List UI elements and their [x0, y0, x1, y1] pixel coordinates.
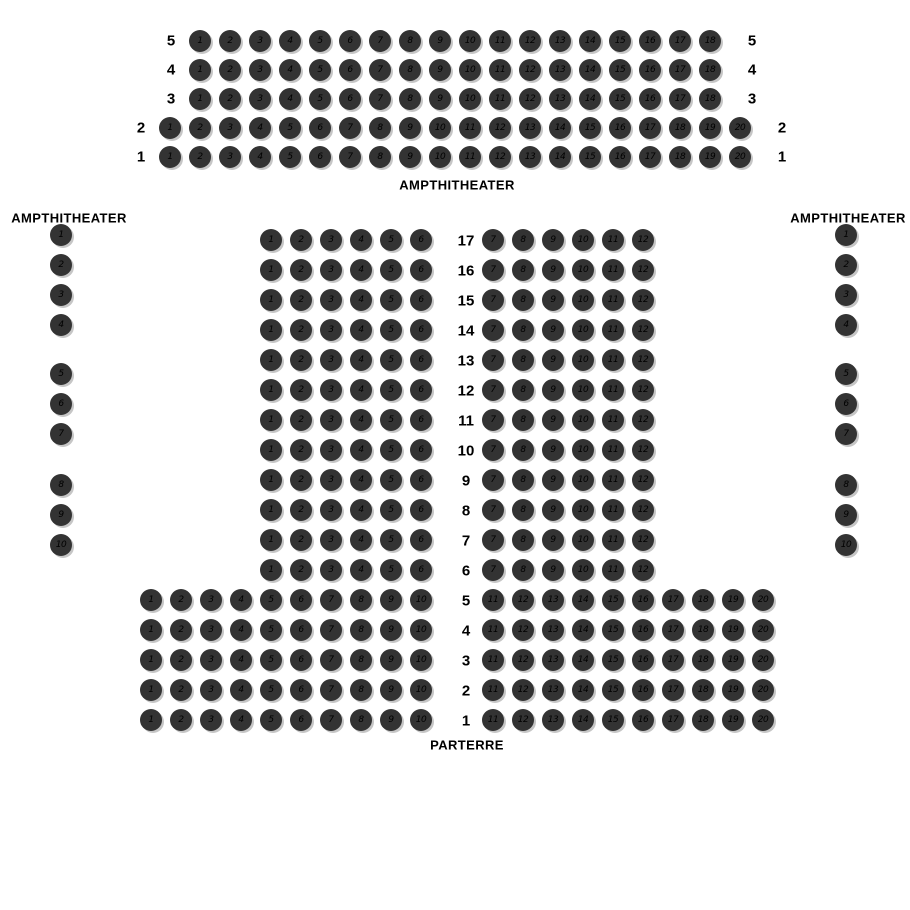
- seat[interactable]: 6: [339, 88, 361, 110]
- seat[interactable]: 18: [692, 589, 714, 611]
- seat[interactable]: 8: [512, 379, 534, 401]
- seat[interactable]: 8: [512, 499, 534, 521]
- seat[interactable]: 1: [835, 224, 857, 246]
- seat[interactable]: 2: [290, 379, 312, 401]
- seat[interactable]: 20: [752, 709, 774, 731]
- seat[interactable]: 20: [752, 679, 774, 701]
- seat[interactable]: 10: [572, 349, 594, 371]
- seat[interactable]: 14: [572, 649, 594, 671]
- seat[interactable]: 8: [399, 88, 421, 110]
- seat[interactable]: 5: [380, 529, 402, 551]
- seat[interactable]: 8: [369, 117, 391, 139]
- seat[interactable]: 9: [399, 146, 421, 168]
- seat[interactable]: 9: [542, 289, 564, 311]
- seat[interactable]: 7: [482, 529, 504, 551]
- seat[interactable]: 11: [482, 619, 504, 641]
- seat[interactable]: 3: [50, 284, 72, 306]
- seat[interactable]: 10: [572, 289, 594, 311]
- seat[interactable]: 2: [290, 439, 312, 461]
- seat[interactable]: 18: [699, 88, 721, 110]
- seat[interactable]: 4: [350, 529, 372, 551]
- seat[interactable]: 4: [249, 146, 271, 168]
- seat[interactable]: 9: [542, 259, 564, 281]
- seat[interactable]: 16: [609, 117, 631, 139]
- seat[interactable]: 15: [609, 88, 631, 110]
- seat[interactable]: 2: [290, 259, 312, 281]
- seat[interactable]: 7: [320, 649, 342, 671]
- seat[interactable]: 3: [320, 259, 342, 281]
- seat[interactable]: 3: [200, 679, 222, 701]
- seat[interactable]: 7: [482, 379, 504, 401]
- seat[interactable]: 17: [662, 619, 684, 641]
- seat[interactable]: 3: [200, 619, 222, 641]
- seat[interactable]: 6: [290, 619, 312, 641]
- seat[interactable]: 20: [752, 649, 774, 671]
- seat[interactable]: 5: [380, 559, 402, 581]
- seat[interactable]: 15: [602, 679, 624, 701]
- seat[interactable]: 4: [50, 314, 72, 336]
- seat[interactable]: 4: [279, 30, 301, 52]
- seat[interactable]: 20: [729, 117, 751, 139]
- seat[interactable]: 15: [579, 117, 601, 139]
- seat[interactable]: 12: [632, 229, 654, 251]
- seat[interactable]: 6: [410, 559, 432, 581]
- seat[interactable]: 4: [350, 289, 372, 311]
- seat[interactable]: 6: [410, 289, 432, 311]
- seat[interactable]: 1: [140, 679, 162, 701]
- seat[interactable]: 9: [380, 649, 402, 671]
- seat[interactable]: 1: [50, 224, 72, 246]
- seat[interactable]: 2: [219, 30, 241, 52]
- seat[interactable]: 14: [579, 88, 601, 110]
- seat[interactable]: 9: [50, 504, 72, 526]
- seat[interactable]: 9: [380, 589, 402, 611]
- seat[interactable]: 10: [410, 679, 432, 701]
- seat[interactable]: 14: [572, 679, 594, 701]
- seat[interactable]: 11: [482, 649, 504, 671]
- seat[interactable]: 6: [290, 589, 312, 611]
- seat[interactable]: 4: [230, 589, 252, 611]
- seat[interactable]: 12: [489, 117, 511, 139]
- seat[interactable]: 9: [429, 30, 451, 52]
- seat[interactable]: 8: [512, 559, 534, 581]
- seat[interactable]: 11: [602, 529, 624, 551]
- seat[interactable]: 9: [542, 439, 564, 461]
- seat[interactable]: 8: [512, 469, 534, 491]
- seat[interactable]: 11: [602, 229, 624, 251]
- seat[interactable]: 6: [339, 59, 361, 81]
- seat[interactable]: 10: [572, 529, 594, 551]
- seat[interactable]: 18: [699, 59, 721, 81]
- seat[interactable]: 1: [260, 499, 282, 521]
- seat[interactable]: 7: [835, 423, 857, 445]
- seat[interactable]: 7: [482, 439, 504, 461]
- seat[interactable]: 3: [320, 229, 342, 251]
- seat[interactable]: 9: [542, 559, 564, 581]
- seat[interactable]: 6: [410, 469, 432, 491]
- seat[interactable]: 12: [512, 679, 534, 701]
- seat[interactable]: 1: [140, 619, 162, 641]
- seat[interactable]: 17: [662, 649, 684, 671]
- seat[interactable]: 8: [512, 529, 534, 551]
- seat[interactable]: 16: [632, 589, 654, 611]
- seat[interactable]: 1: [140, 589, 162, 611]
- seat[interactable]: 5: [380, 469, 402, 491]
- seat[interactable]: 11: [489, 88, 511, 110]
- seat[interactable]: 5: [279, 117, 301, 139]
- seat[interactable]: 7: [482, 259, 504, 281]
- seat[interactable]: 12: [632, 259, 654, 281]
- seat[interactable]: 3: [320, 499, 342, 521]
- seat[interactable]: 2: [50, 254, 72, 276]
- seat[interactable]: 8: [50, 474, 72, 496]
- seat[interactable]: 6: [309, 117, 331, 139]
- seat[interactable]: 4: [350, 439, 372, 461]
- seat[interactable]: 2: [170, 619, 192, 641]
- seat[interactable]: 16: [639, 30, 661, 52]
- seat[interactable]: 5: [380, 409, 402, 431]
- seat[interactable]: 1: [260, 559, 282, 581]
- seat[interactable]: 4: [350, 409, 372, 431]
- seat[interactable]: 7: [482, 349, 504, 371]
- seat[interactable]: 13: [542, 619, 564, 641]
- seat[interactable]: 4: [835, 314, 857, 336]
- seat[interactable]: 10: [835, 534, 857, 556]
- seat[interactable]: 9: [429, 59, 451, 81]
- seat[interactable]: 1: [260, 379, 282, 401]
- seat[interactable]: 7: [482, 319, 504, 341]
- seat[interactable]: 10: [572, 409, 594, 431]
- seat[interactable]: 12: [512, 709, 534, 731]
- seat[interactable]: 5: [260, 589, 282, 611]
- seat[interactable]: 13: [549, 59, 571, 81]
- seat[interactable]: 3: [249, 30, 271, 52]
- seat[interactable]: 17: [639, 146, 661, 168]
- seat[interactable]: 3: [320, 559, 342, 581]
- seat[interactable]: 8: [350, 649, 372, 671]
- seat[interactable]: 2: [290, 319, 312, 341]
- seat[interactable]: 16: [639, 59, 661, 81]
- seat[interactable]: 10: [410, 619, 432, 641]
- seat[interactable]: 10: [459, 30, 481, 52]
- seat[interactable]: 20: [729, 146, 751, 168]
- seat[interactable]: 12: [632, 379, 654, 401]
- seat[interactable]: 3: [219, 146, 241, 168]
- seat[interactable]: 1: [159, 117, 181, 139]
- seat[interactable]: 7: [482, 499, 504, 521]
- seat[interactable]: 9: [835, 504, 857, 526]
- seat[interactable]: 12: [512, 619, 534, 641]
- seat[interactable]: 12: [632, 409, 654, 431]
- seat[interactable]: 2: [290, 499, 312, 521]
- seat[interactable]: 7: [339, 117, 361, 139]
- seat[interactable]: 17: [662, 679, 684, 701]
- seat[interactable]: 14: [579, 59, 601, 81]
- seat[interactable]: 11: [602, 439, 624, 461]
- seat[interactable]: 10: [572, 259, 594, 281]
- seat[interactable]: 10: [410, 589, 432, 611]
- seat[interactable]: 3: [835, 284, 857, 306]
- seat[interactable]: 4: [230, 649, 252, 671]
- seat[interactable]: 5: [279, 146, 301, 168]
- seat[interactable]: 9: [542, 229, 564, 251]
- seat[interactable]: 8: [512, 409, 534, 431]
- seat[interactable]: 12: [632, 349, 654, 371]
- seat[interactable]: 6: [835, 393, 857, 415]
- seat[interactable]: 6: [410, 499, 432, 521]
- seat[interactable]: 12: [632, 559, 654, 581]
- seat[interactable]: 9: [380, 619, 402, 641]
- seat[interactable]: 12: [489, 146, 511, 168]
- seat[interactable]: 11: [602, 559, 624, 581]
- seat[interactable]: 8: [512, 259, 534, 281]
- seat[interactable]: 6: [290, 679, 312, 701]
- seat[interactable]: 10: [572, 499, 594, 521]
- seat[interactable]: 6: [339, 30, 361, 52]
- seat[interactable]: 5: [380, 439, 402, 461]
- seat[interactable]: 7: [320, 619, 342, 641]
- seat[interactable]: 20: [752, 589, 774, 611]
- seat[interactable]: 6: [290, 649, 312, 671]
- seat[interactable]: 3: [200, 649, 222, 671]
- seat[interactable]: 11: [602, 289, 624, 311]
- seat[interactable]: 18: [692, 619, 714, 641]
- seat[interactable]: 4: [350, 319, 372, 341]
- seat[interactable]: 14: [572, 619, 594, 641]
- seat[interactable]: 18: [699, 30, 721, 52]
- seat[interactable]: 3: [320, 289, 342, 311]
- seat[interactable]: 17: [639, 117, 661, 139]
- seat[interactable]: 19: [722, 589, 744, 611]
- seat[interactable]: 9: [542, 469, 564, 491]
- seat[interactable]: 18: [692, 649, 714, 671]
- seat[interactable]: 11: [602, 499, 624, 521]
- seat[interactable]: 6: [309, 146, 331, 168]
- seat[interactable]: 1: [189, 30, 211, 52]
- seat[interactable]: 19: [722, 679, 744, 701]
- seat[interactable]: 7: [482, 409, 504, 431]
- seat[interactable]: 16: [632, 679, 654, 701]
- seat[interactable]: 18: [669, 146, 691, 168]
- seat[interactable]: 1: [260, 409, 282, 431]
- seat[interactable]: 9: [429, 88, 451, 110]
- seat[interactable]: 5: [380, 379, 402, 401]
- seat[interactable]: 8: [512, 229, 534, 251]
- seat[interactable]: 10: [572, 559, 594, 581]
- seat[interactable]: 10: [572, 229, 594, 251]
- seat[interactable]: 5: [309, 88, 331, 110]
- seat[interactable]: 11: [459, 117, 481, 139]
- seat[interactable]: 13: [542, 649, 564, 671]
- seat[interactable]: 18: [669, 117, 691, 139]
- seat[interactable]: 2: [290, 469, 312, 491]
- seat[interactable]: 16: [639, 88, 661, 110]
- seat[interactable]: 6: [290, 709, 312, 731]
- seat[interactable]: 14: [572, 589, 594, 611]
- seat[interactable]: 5: [380, 499, 402, 521]
- seat[interactable]: 2: [290, 559, 312, 581]
- seat[interactable]: 3: [249, 88, 271, 110]
- seat[interactable]: 4: [350, 349, 372, 371]
- seat[interactable]: 18: [692, 709, 714, 731]
- seat[interactable]: 11: [489, 59, 511, 81]
- seat[interactable]: 5: [380, 349, 402, 371]
- seat[interactable]: 17: [662, 589, 684, 611]
- seat[interactable]: 7: [320, 679, 342, 701]
- seat[interactable]: 9: [542, 379, 564, 401]
- seat[interactable]: 6: [410, 379, 432, 401]
- seat[interactable]: 9: [380, 709, 402, 731]
- seat[interactable]: 11: [602, 259, 624, 281]
- seat[interactable]: 3: [219, 117, 241, 139]
- seat[interactable]: 4: [230, 679, 252, 701]
- seat[interactable]: 15: [602, 589, 624, 611]
- seat[interactable]: 17: [662, 709, 684, 731]
- seat[interactable]: 5: [380, 259, 402, 281]
- seat[interactable]: 3: [320, 439, 342, 461]
- seat[interactable]: 16: [632, 649, 654, 671]
- seat[interactable]: 19: [722, 709, 744, 731]
- seat[interactable]: 5: [260, 619, 282, 641]
- seat[interactable]: 5: [380, 289, 402, 311]
- seat[interactable]: 11: [602, 319, 624, 341]
- seat[interactable]: 5: [309, 59, 331, 81]
- seat[interactable]: 10: [429, 146, 451, 168]
- seat[interactable]: 7: [482, 469, 504, 491]
- seat[interactable]: 7: [482, 559, 504, 581]
- seat[interactable]: 9: [380, 679, 402, 701]
- seat[interactable]: 7: [320, 589, 342, 611]
- seat[interactable]: 8: [350, 619, 372, 641]
- seat[interactable]: 11: [489, 30, 511, 52]
- seat[interactable]: 12: [519, 88, 541, 110]
- seat[interactable]: 11: [482, 709, 504, 731]
- seat[interactable]: 6: [410, 349, 432, 371]
- seat[interactable]: 12: [632, 499, 654, 521]
- seat[interactable]: 13: [542, 679, 564, 701]
- seat[interactable]: 3: [320, 409, 342, 431]
- seat[interactable]: 5: [380, 229, 402, 251]
- seat[interactable]: 4: [230, 619, 252, 641]
- seat[interactable]: 10: [459, 88, 481, 110]
- seat[interactable]: 16: [632, 709, 654, 731]
- seat[interactable]: 1: [260, 529, 282, 551]
- seat[interactable]: 4: [279, 59, 301, 81]
- seat[interactable]: 7: [369, 59, 391, 81]
- seat[interactable]: 3: [320, 319, 342, 341]
- seat[interactable]: 1: [260, 229, 282, 251]
- seat[interactable]: 9: [399, 117, 421, 139]
- seat[interactable]: 10: [572, 469, 594, 491]
- seat[interactable]: 4: [350, 559, 372, 581]
- seat[interactable]: 16: [609, 146, 631, 168]
- seat[interactable]: 14: [572, 709, 594, 731]
- seat[interactable]: 20: [752, 619, 774, 641]
- seat[interactable]: 2: [170, 679, 192, 701]
- seat[interactable]: 2: [170, 589, 192, 611]
- seat[interactable]: 17: [669, 30, 691, 52]
- seat[interactable]: 7: [320, 709, 342, 731]
- seat[interactable]: 11: [602, 469, 624, 491]
- seat[interactable]: 15: [609, 30, 631, 52]
- seat[interactable]: 8: [512, 289, 534, 311]
- seat[interactable]: 11: [602, 379, 624, 401]
- seat[interactable]: 7: [482, 229, 504, 251]
- seat[interactable]: 18: [692, 679, 714, 701]
- seat[interactable]: 11: [482, 589, 504, 611]
- seat[interactable]: 2: [290, 349, 312, 371]
- seat[interactable]: 15: [609, 59, 631, 81]
- seat[interactable]: 8: [512, 439, 534, 461]
- seat[interactable]: 3: [320, 349, 342, 371]
- seat[interactable]: 15: [602, 649, 624, 671]
- seat[interactable]: 4: [350, 379, 372, 401]
- seat[interactable]: 17: [669, 88, 691, 110]
- seat[interactable]: 5: [50, 363, 72, 385]
- seat[interactable]: 6: [410, 409, 432, 431]
- seat[interactable]: 13: [519, 117, 541, 139]
- seat[interactable]: 6: [410, 529, 432, 551]
- seat[interactable]: 17: [669, 59, 691, 81]
- seat[interactable]: 4: [350, 259, 372, 281]
- seat[interactable]: 2: [219, 88, 241, 110]
- seat[interactable]: 2: [835, 254, 857, 276]
- seat[interactable]: 1: [260, 469, 282, 491]
- seat[interactable]: 4: [279, 88, 301, 110]
- seat[interactable]: 4: [350, 469, 372, 491]
- seat[interactable]: 12: [632, 289, 654, 311]
- seat[interactable]: 6: [50, 393, 72, 415]
- seat[interactable]: 10: [572, 439, 594, 461]
- seat[interactable]: 10: [50, 534, 72, 556]
- seat[interactable]: 7: [369, 30, 391, 52]
- seat[interactable]: 11: [602, 349, 624, 371]
- seat[interactable]: 12: [632, 469, 654, 491]
- seat[interactable]: 8: [512, 349, 534, 371]
- seat[interactable]: 5: [380, 319, 402, 341]
- seat[interactable]: 12: [632, 439, 654, 461]
- seat[interactable]: 13: [542, 589, 564, 611]
- seat[interactable]: 4: [230, 709, 252, 731]
- seat[interactable]: 8: [512, 319, 534, 341]
- seat[interactable]: 8: [399, 59, 421, 81]
- seat[interactable]: 4: [350, 229, 372, 251]
- seat[interactable]: 9: [542, 529, 564, 551]
- seat[interactable]: 9: [542, 499, 564, 521]
- seat[interactable]: 10: [572, 319, 594, 341]
- seat[interactable]: 12: [519, 59, 541, 81]
- seat[interactable]: 14: [549, 117, 571, 139]
- seat[interactable]: 1: [260, 349, 282, 371]
- seat[interactable]: 7: [339, 146, 361, 168]
- seat[interactable]: 2: [290, 289, 312, 311]
- seat[interactable]: 11: [482, 679, 504, 701]
- seat[interactable]: 4: [249, 117, 271, 139]
- seat[interactable]: 8: [369, 146, 391, 168]
- seat[interactable]: 2: [189, 117, 211, 139]
- seat[interactable]: 6: [410, 229, 432, 251]
- seat[interactable]: 12: [512, 589, 534, 611]
- seat[interactable]: 3: [200, 589, 222, 611]
- seat[interactable]: 1: [159, 146, 181, 168]
- seat[interactable]: 2: [290, 409, 312, 431]
- seat[interactable]: 5: [309, 30, 331, 52]
- seat[interactable]: 7: [50, 423, 72, 445]
- seat[interactable]: 8: [350, 589, 372, 611]
- seat[interactable]: 1: [189, 88, 211, 110]
- seat[interactable]: 2: [170, 649, 192, 671]
- seat[interactable]: 10: [459, 59, 481, 81]
